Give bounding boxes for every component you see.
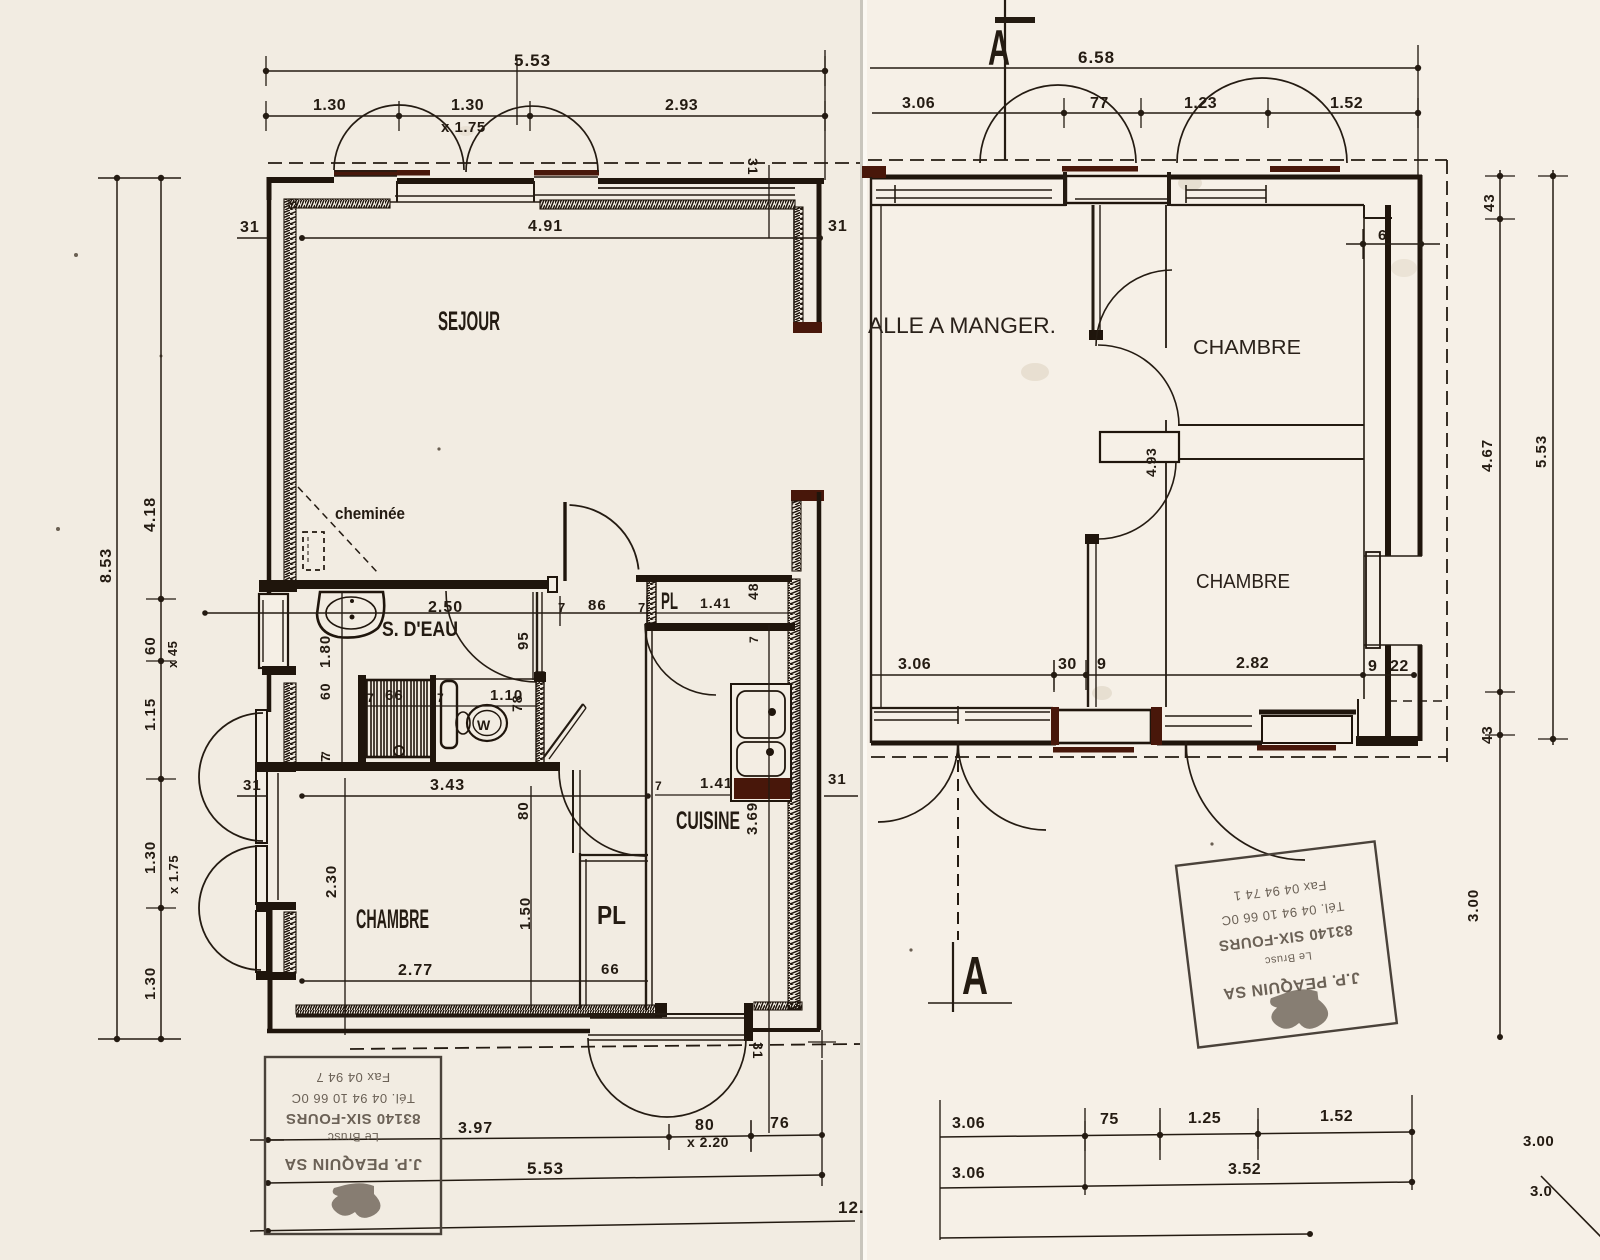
svg-text:60: 60: [142, 636, 159, 655]
svg-text:6: 6: [1378, 227, 1386, 244]
svg-text:3.06: 3.06: [902, 95, 935, 112]
svg-text:66: 66: [601, 961, 620, 978]
svg-text:Fax 04 94 7: Fax 04 94 7: [316, 1070, 390, 1085]
svg-text:7: 7: [655, 779, 662, 793]
svg-text:43: 43: [1479, 725, 1496, 744]
svg-text:x 45: x 45: [165, 641, 180, 668]
svg-text:4.18: 4.18: [142, 497, 159, 532]
svg-text:31: 31: [745, 158, 761, 176]
svg-text:4.91: 4.91: [528, 218, 563, 235]
svg-text:3.97: 3.97: [458, 1120, 493, 1137]
svg-text:3.06: 3.06: [952, 1115, 985, 1132]
svg-text:95: 95: [515, 631, 532, 650]
svg-text:3.43: 3.43: [430, 777, 465, 794]
svg-text:5.53: 5.53: [1533, 435, 1550, 468]
svg-text:80: 80: [695, 1117, 715, 1134]
svg-text:77: 77: [1090, 95, 1109, 112]
svg-text:60: 60: [317, 682, 333, 700]
svg-text:3.0: 3.0: [1530, 1183, 1552, 1200]
svg-text:31: 31: [243, 777, 262, 794]
svg-text:31: 31: [240, 219, 260, 236]
svg-text:30: 30: [1058, 656, 1077, 673]
svg-text:2.77: 2.77: [398, 962, 433, 979]
svg-text:4.93: 4.93: [1143, 448, 1159, 477]
svg-text:66: 66: [385, 687, 404, 704]
svg-text:31: 31: [750, 1042, 766, 1060]
svg-text:4.67: 4.67: [1479, 439, 1496, 472]
svg-text:48: 48: [745, 582, 761, 600]
svg-text:2.93: 2.93: [665, 97, 698, 114]
svg-text:83140 SIX-FOURS: 83140 SIX-FOURS: [285, 1110, 420, 1127]
svg-text:3.00: 3.00: [1523, 1133, 1554, 1150]
svg-text:9: 9: [1368, 658, 1377, 675]
svg-text:3.00: 3.00: [1465, 889, 1482, 922]
svg-text:78: 78: [509, 694, 525, 712]
svg-text:7: 7: [367, 691, 374, 705]
svg-text:43: 43: [1481, 193, 1498, 212]
svg-text:1.25: 1.25: [1188, 1110, 1221, 1127]
svg-text:31: 31: [828, 771, 847, 788]
svg-text:1.30: 1.30: [142, 967, 159, 1000]
svg-text:S. D'EAU: S. D'EAU: [382, 618, 458, 641]
svg-text:2.30: 2.30: [323, 865, 340, 898]
svg-text:3.69: 3.69: [744, 802, 761, 835]
svg-text:J.P. PEAQUIN SA: J.P. PEAQUIN SA: [284, 1155, 422, 1172]
svg-text:80: 80: [515, 801, 532, 820]
svg-text:SEJOUR: SEJOUR: [438, 306, 500, 336]
svg-text:CHAMBRE: CHAMBRE: [1193, 337, 1301, 359]
svg-text:5.53: 5.53: [514, 51, 551, 70]
svg-text:8.53: 8.53: [98, 548, 115, 583]
svg-text:1.52: 1.52: [1320, 1108, 1353, 1125]
svg-text:3.52: 3.52: [1228, 1161, 1261, 1178]
svg-text:Le Brusc: Le Brusc: [327, 1130, 378, 1144]
svg-text:x 1.75: x 1.75: [166, 855, 181, 894]
svg-text:ALLE A MANGER.: ALLE A MANGER.: [868, 313, 1056, 338]
svg-text:cheminée: cheminée: [335, 504, 405, 523]
svg-text:1.15: 1.15: [142, 698, 159, 731]
svg-text:1.30: 1.30: [142, 841, 159, 874]
svg-text:9: 9: [1097, 656, 1106, 673]
svg-text:A: A: [962, 946, 988, 1006]
svg-text:x 1.75: x 1.75: [441, 119, 486, 136]
svg-text:Tél. 04 94 10 66 0C: Tél. 04 94 10 66 0C: [291, 1091, 415, 1106]
svg-text:CHAMBRE: CHAMBRE: [1196, 571, 1290, 593]
svg-text:PL: PL: [661, 588, 678, 615]
svg-text:75: 75: [1100, 1111, 1119, 1128]
svg-text:86: 86: [588, 597, 607, 614]
svg-text:31: 31: [828, 218, 848, 235]
svg-text:12.: 12.: [838, 1198, 865, 1217]
svg-text:3.06: 3.06: [898, 656, 931, 673]
svg-text:7: 7: [319, 751, 333, 758]
svg-text:1.80: 1.80: [317, 635, 334, 668]
svg-text:1.23: 1.23: [1184, 95, 1217, 112]
svg-text:1.52: 1.52: [1330, 95, 1363, 112]
svg-text:2.82: 2.82: [1236, 655, 1269, 672]
svg-text:7: 7: [437, 691, 444, 705]
svg-text:W: W: [477, 717, 491, 733]
svg-text:22: 22: [1390, 658, 1409, 675]
svg-text:5.53: 5.53: [527, 1159, 564, 1178]
svg-text:PL: PL: [597, 900, 626, 930]
svg-text:6.58: 6.58: [1078, 48, 1115, 67]
svg-text:1.30: 1.30: [313, 97, 346, 114]
svg-text:1.30: 1.30: [451, 97, 484, 114]
svg-text:3.06: 3.06: [952, 1165, 985, 1182]
svg-text:1.41: 1.41: [700, 595, 731, 611]
svg-text:7: 7: [747, 636, 761, 643]
svg-text:CUISINE: CUISINE: [676, 807, 740, 835]
svg-text:1.41: 1.41: [700, 775, 733, 792]
svg-text:76: 76: [770, 1115, 790, 1132]
svg-text:CHAMBRE: CHAMBRE: [356, 904, 429, 934]
